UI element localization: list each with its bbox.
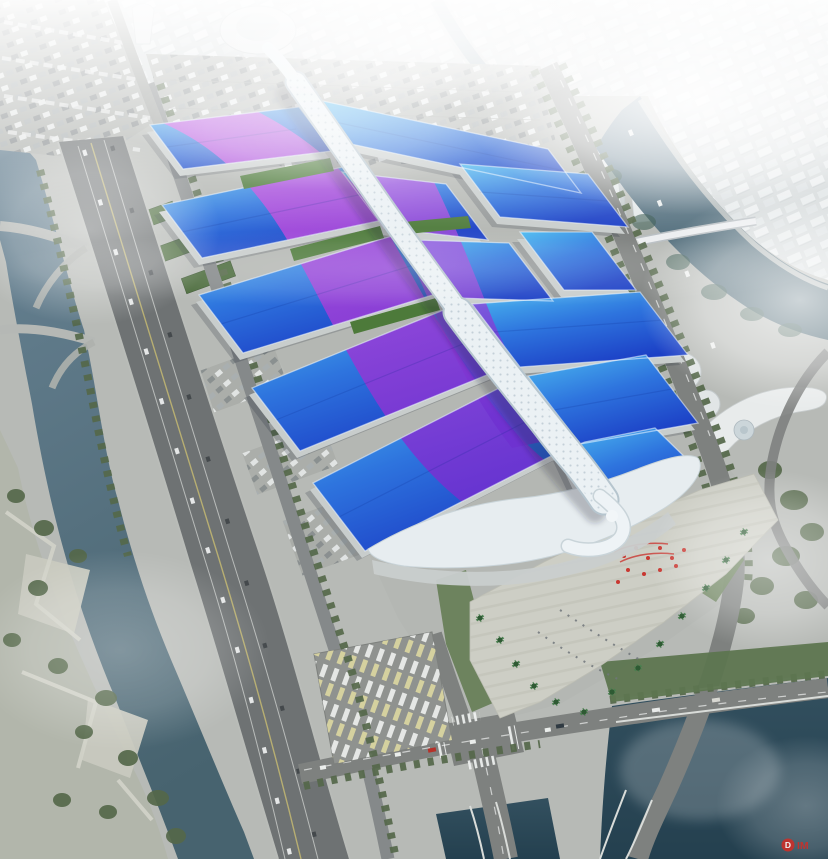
watermark-badge-letter: D: [785, 840, 791, 850]
bus-depot-buses: [314, 632, 452, 764]
haze-streak: [0, 228, 828, 308]
watermark-text: IM: [797, 840, 809, 852]
glass-dome-center: [740, 426, 748, 434]
ribbon-curl-tip: [606, 510, 618, 522]
scene-svg: D IM: [0, 0, 828, 859]
aerial-rendering-exhibition-center: D IM: [0, 0, 828, 859]
